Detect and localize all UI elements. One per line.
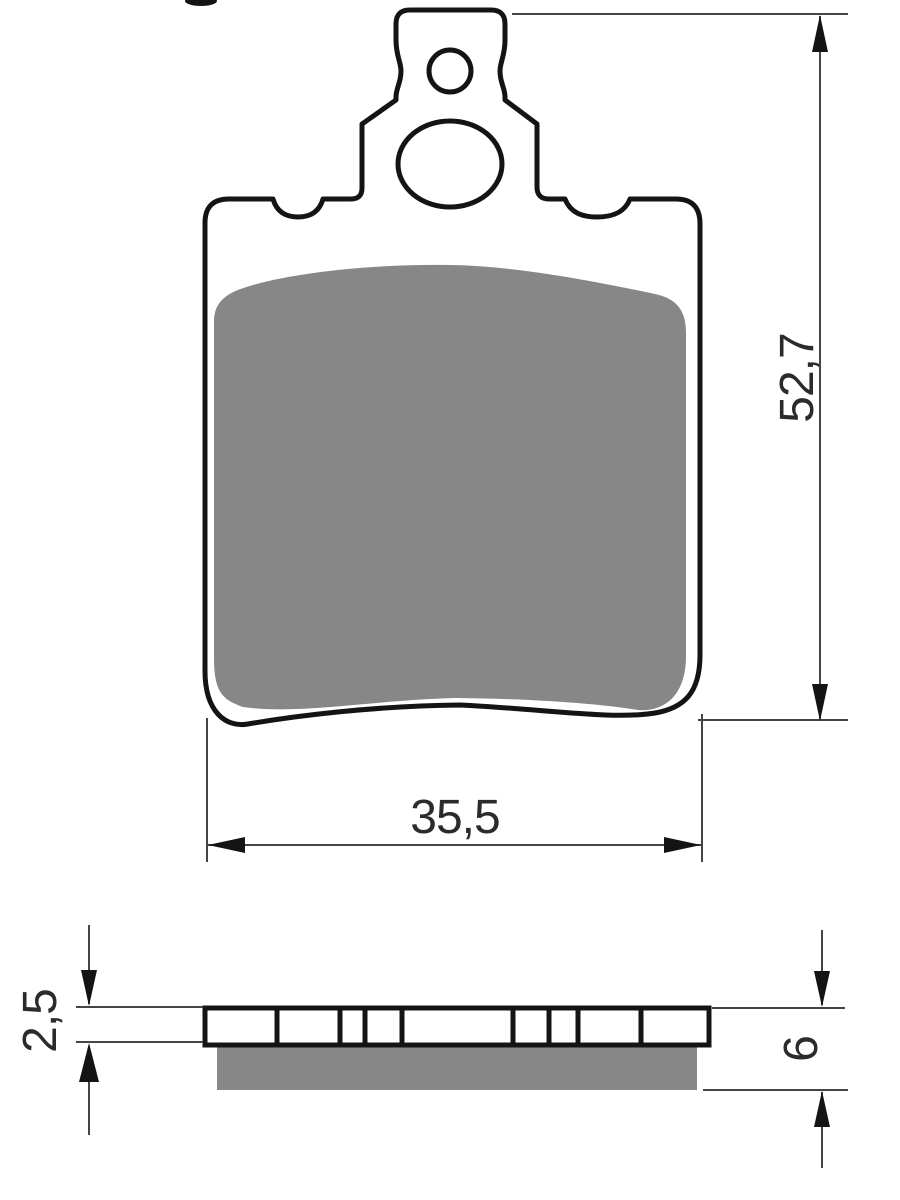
front-view [205, 10, 700, 725]
side-friction-material [217, 1045, 697, 1090]
drawing-svg: 52,7 35,5 2,5 [0, 0, 900, 1200]
thickness-arrow-up [79, 1043, 99, 1082]
total-arrow-down [814, 971, 830, 1007]
height-dim-label: 52,7 [771, 333, 824, 422]
width-arrow-right [664, 837, 701, 853]
total-arrow-up [814, 1091, 830, 1127]
thickness-arrow-down [81, 970, 97, 1006]
backplate-thickness-dimension [76, 925, 203, 1135]
width-arrow-left [208, 837, 245, 853]
height-arrow-up [812, 15, 828, 52]
friction-material [214, 265, 686, 710]
height-arrow-down [812, 684, 828, 721]
backplate-thickness-label: 2,5 [14, 989, 67, 1053]
brake-pad-technical-drawing: 52,7 35,5 2,5 [0, 0, 900, 1200]
cropped-top-mark [185, 0, 217, 6]
side-view [205, 1008, 709, 1090]
pin-hole-oval [398, 121, 502, 207]
pin-hole-small [429, 50, 471, 92]
width-dim-label: 35,5 [410, 791, 499, 844]
side-backplate [205, 1008, 709, 1045]
total-thickness-label: 6 [775, 1036, 828, 1062]
